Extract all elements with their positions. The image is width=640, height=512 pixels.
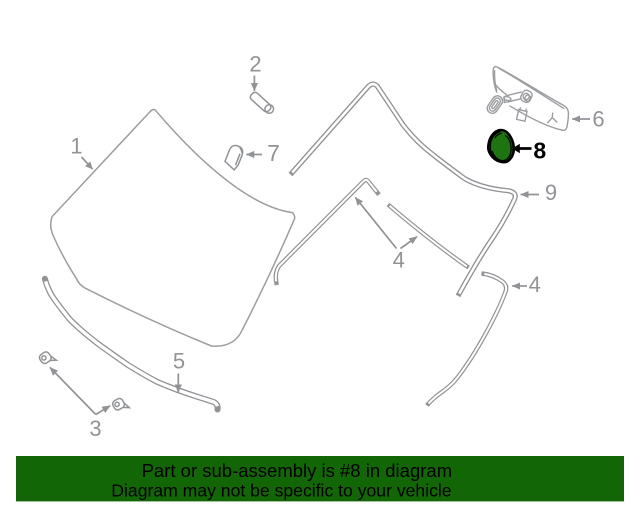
svg-text:7: 7 <box>267 140 280 166</box>
svg-text:4: 4 <box>393 248 405 273</box>
svg-text:Diagram may not be specific to: Diagram may not be specific to your vehi… <box>111 480 451 500</box>
svg-text:2: 2 <box>249 52 261 77</box>
svg-text:6: 6 <box>592 107 604 132</box>
svg-text:3: 3 <box>89 416 101 441</box>
svg-text:Part or sub-assembly is #8 in: Part or sub-assembly is #8 in diagram <box>142 460 453 481</box>
svg-text:5: 5 <box>173 349 185 374</box>
svg-text:8: 8 <box>533 138 546 164</box>
svg-text:1: 1 <box>70 134 82 159</box>
svg-text:4: 4 <box>529 272 541 297</box>
svg-text:9: 9 <box>545 180 557 205</box>
